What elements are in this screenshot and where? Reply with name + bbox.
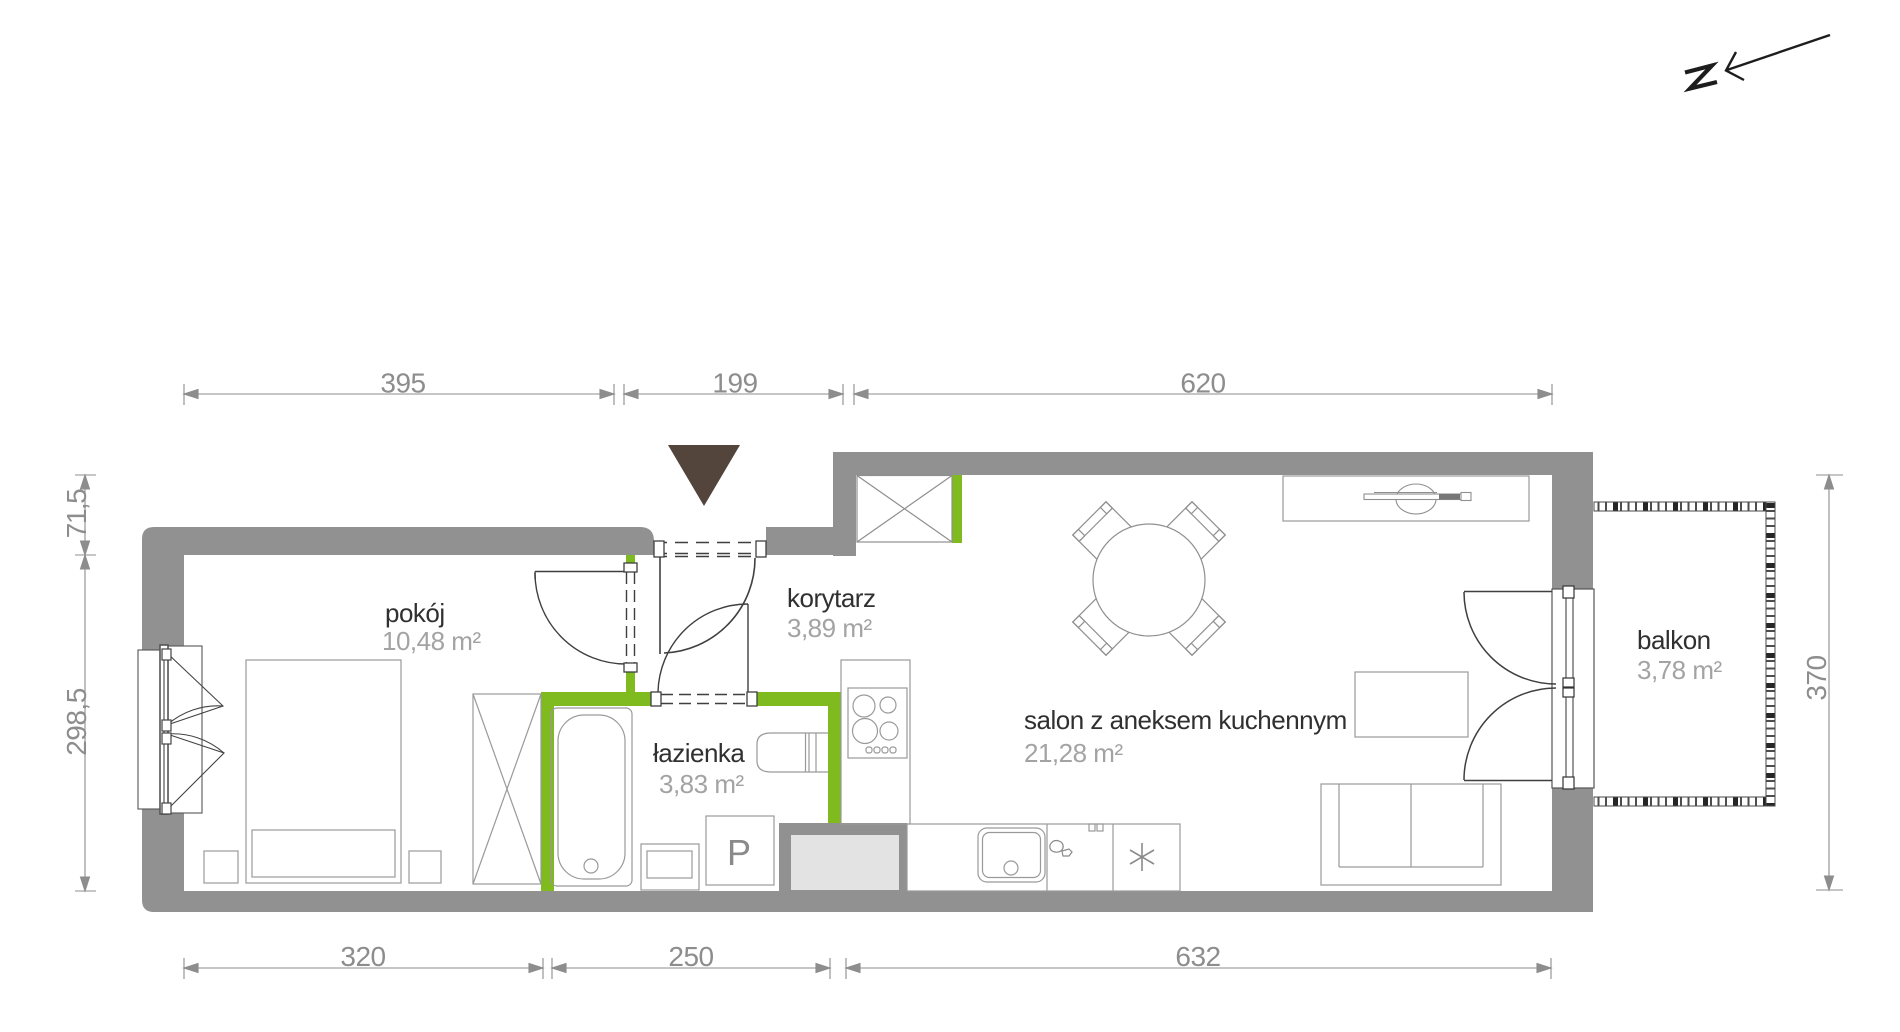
svg-text:3,83 m²: 3,83 m² — [659, 769, 744, 799]
svg-text:370: 370 — [1801, 655, 1832, 700]
svg-text:3,89 m²: 3,89 m² — [787, 613, 872, 643]
svg-text:199: 199 — [712, 368, 757, 399]
svg-text:320: 320 — [340, 941, 385, 972]
svg-text:250: 250 — [668, 941, 713, 972]
svg-text:620: 620 — [1180, 368, 1225, 399]
svg-text:10,48 m²: 10,48 m² — [382, 626, 481, 656]
svg-text:pokój: pokój — [385, 598, 445, 628]
svg-text:71,5: 71,5 — [61, 489, 92, 538]
svg-text:3,78 m²: 3,78 m² — [1637, 655, 1722, 685]
svg-text:395: 395 — [380, 368, 425, 399]
svg-text:P: P — [727, 832, 751, 873]
svg-text:632: 632 — [1175, 941, 1220, 972]
svg-text:korytarz: korytarz — [787, 583, 875, 613]
svg-text:łazienka: łazienka — [653, 738, 745, 768]
svg-text:298,5: 298,5 — [61, 688, 92, 756]
svg-text:balkon: balkon — [1637, 625, 1711, 655]
svg-text:21,28 m²: 21,28 m² — [1024, 738, 1123, 768]
svg-text:salon z aneksem kuchennym: salon z aneksem kuchennym — [1024, 705, 1347, 735]
